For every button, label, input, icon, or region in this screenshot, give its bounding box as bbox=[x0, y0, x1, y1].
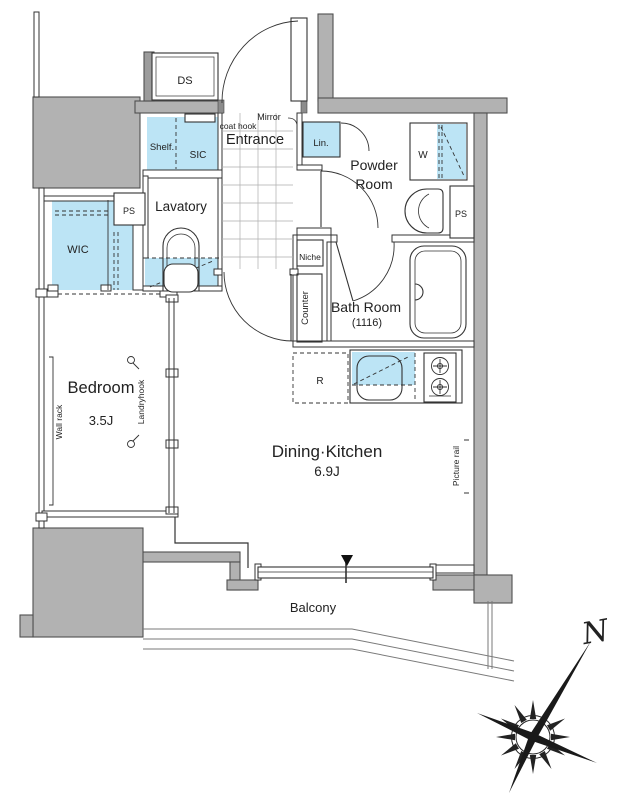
toilet bbox=[405, 189, 443, 233]
bathtub-inner bbox=[415, 251, 461, 333]
bathtub bbox=[410, 246, 466, 338]
bath-door-leaf bbox=[336, 242, 353, 301]
coat-hook-label: coat hook bbox=[220, 121, 258, 131]
mirror-label: Mirror bbox=[257, 112, 281, 122]
entrance-door-leaf bbox=[291, 18, 307, 101]
bath-size-label: (1116) bbox=[352, 317, 382, 329]
powder-room-label-2: Room bbox=[355, 176, 392, 192]
basin-bowl bbox=[164, 264, 198, 292]
outer-walls bbox=[20, 14, 512, 637]
wall-rack-label: Wall rack bbox=[54, 404, 64, 439]
floorplan-page: DS Shelf. SIC coat hook Entrance Mirror … bbox=[0, 0, 622, 800]
bath-room-label: Bath Room bbox=[331, 299, 401, 315]
washer-label: W bbox=[418, 150, 428, 161]
refrigerator-label: R bbox=[316, 376, 323, 387]
coat-hook-bar bbox=[185, 114, 215, 122]
floorplan-drawing: DS Shelf. SIC coat hook Entrance Mirror … bbox=[0, 0, 622, 800]
bedroom-size-label: 3.5J bbox=[89, 413, 114, 428]
shelf-label: Shelf. bbox=[150, 142, 174, 153]
entrance-label: Entrance bbox=[226, 132, 284, 148]
dining-kitchen-size-label: 6.9J bbox=[314, 464, 340, 479]
entrance-door-swing bbox=[222, 21, 298, 103]
lavatory-label: Lavatory bbox=[155, 199, 207, 214]
entry-direction-marker bbox=[341, 555, 353, 566]
hall-dk-door-swing bbox=[224, 272, 293, 341]
compass-north-label: N bbox=[578, 613, 613, 653]
wall-rack-line bbox=[49, 357, 53, 505]
washer-pan-area bbox=[437, 124, 466, 179]
linen-label: Lin. bbox=[313, 138, 328, 149]
sic-label: SIC bbox=[190, 150, 207, 161]
wic-label: WIC bbox=[67, 244, 88, 256]
picture-rail-ticks bbox=[464, 440, 469, 493]
ds-label: DS bbox=[177, 75, 192, 87]
ps-powder-label: PS bbox=[455, 209, 467, 219]
compass-rose bbox=[477, 641, 597, 793]
bedroom-partition bbox=[169, 298, 174, 513]
stove-burners bbox=[432, 358, 449, 396]
linen-door-swing bbox=[341, 123, 369, 151]
balcony-label: Balcony bbox=[290, 600, 337, 615]
picture-rail-label: Picture rail bbox=[451, 446, 461, 486]
powder-room-label-1: Powder bbox=[350, 157, 398, 173]
counter-label: Counter bbox=[300, 291, 311, 325]
niche-label: Niche bbox=[299, 252, 321, 262]
laundry-hook-label: Landryhook bbox=[136, 379, 146, 424]
ps-lavatory-label: PS bbox=[123, 206, 135, 216]
balcony-window bbox=[258, 562, 433, 583]
compass-needles bbox=[477, 641, 597, 793]
bedroom-label: Bedroom bbox=[68, 379, 135, 397]
dining-kitchen-label: Dining·Kitchen bbox=[272, 442, 383, 461]
bath-door-swing bbox=[353, 242, 394, 301]
mirror-leader bbox=[288, 118, 297, 125]
bathtub-faucet bbox=[415, 284, 423, 300]
interior-walls bbox=[34, 12, 474, 573]
